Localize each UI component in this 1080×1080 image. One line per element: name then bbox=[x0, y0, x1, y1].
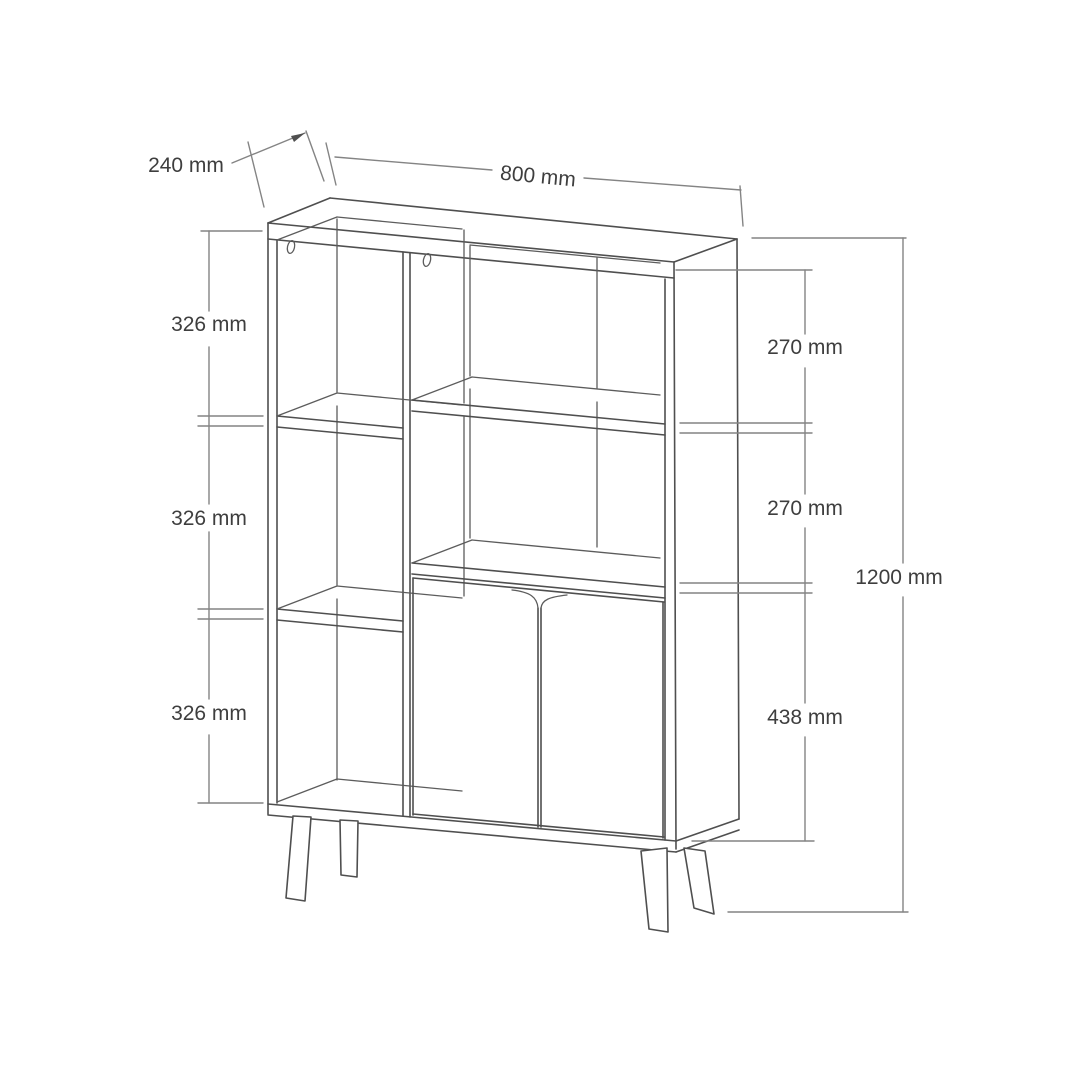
dimension-arrow-icon bbox=[291, 133, 305, 142]
right-section-dimension-label-2: 270 mm bbox=[767, 497, 843, 520]
left-section-dimension-label-1: 326 mm bbox=[171, 313, 247, 336]
left-section-dimension-label-2: 326 mm bbox=[171, 507, 247, 530]
left-section-dimension-label-3: 326 mm bbox=[171, 702, 247, 725]
right-section-dimension-label-3: 438 mm bbox=[767, 706, 843, 729]
door-handle-curve bbox=[512, 590, 538, 608]
right-section-dimension-label-1: 270 mm bbox=[767, 336, 843, 359]
technical-drawing-canvas: 240 mm 800 mm 326 mm 326 mm 326 mm 270 m… bbox=[0, 0, 1080, 1080]
depth-dimension bbox=[232, 131, 324, 207]
cabinet-outline bbox=[268, 198, 739, 852]
front-right-leg bbox=[641, 848, 668, 932]
width-dimension-label: 800 mm bbox=[499, 162, 577, 192]
keyhole-icon bbox=[286, 240, 296, 254]
total-height-dimension-label: 1200 mm bbox=[855, 566, 943, 589]
cabinet-legs bbox=[286, 816, 714, 932]
cabinet-interior bbox=[277, 217, 665, 817]
depth-dimension-label: 240 mm bbox=[148, 154, 224, 177]
door-handle-curve bbox=[541, 595, 567, 608]
front-left-leg bbox=[286, 816, 311, 901]
back-left-leg bbox=[340, 820, 358, 877]
cabinet-doors bbox=[413, 578, 664, 838]
bookshelf-dimension-diagram: 240 mm 800 mm 326 mm 326 mm 326 mm 270 m… bbox=[0, 0, 1080, 1080]
back-right-leg bbox=[684, 848, 714, 914]
